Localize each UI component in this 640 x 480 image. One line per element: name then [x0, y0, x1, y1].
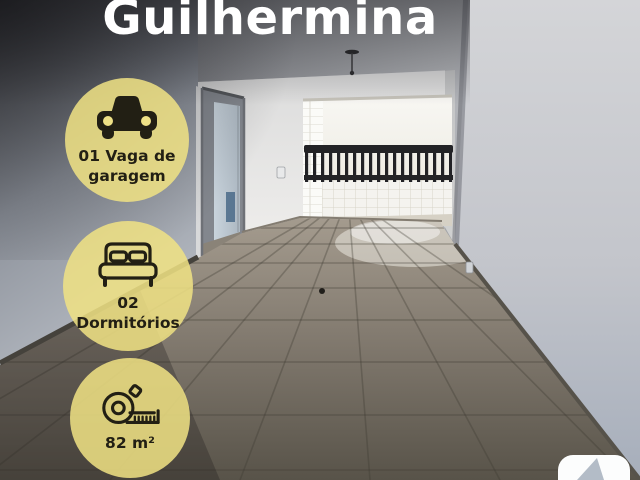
badge-parking-label: 01 Vaga de garagem	[78, 147, 175, 187]
badge-area: 82 m²	[70, 358, 190, 478]
car-icon	[94, 94, 160, 142]
power-outlet	[466, 262, 473, 273]
badge-area-line1: 82 m²	[105, 434, 155, 454]
floor-dot	[319, 288, 325, 294]
badge-parking-line1: 01 Vaga de	[78, 147, 175, 167]
balcony	[303, 96, 453, 226]
badge-bedrooms-label: 02 Dormitórios	[63, 294, 193, 334]
badge-bedrooms: 02 Dormitórios	[63, 221, 193, 351]
bed-icon	[95, 239, 161, 289]
badge-parking: 01 Vaga de garagem	[65, 78, 189, 202]
page-title: Guilhermina	[30, 0, 510, 46]
listing-image: Guilhermina 01 Vaga de garagem	[0, 0, 640, 480]
watermark-logo	[558, 455, 630, 480]
balcony-parapet-tiles	[322, 180, 452, 218]
badge-parking-line2: garagem	[78, 167, 175, 187]
badge-area-label: 82 m²	[105, 434, 155, 454]
logo-mark-icon	[558, 455, 630, 480]
balcony-railing	[304, 145, 453, 182]
tape-measure-icon	[98, 383, 162, 429]
badge-bedrooms-line1: 02 Dormitórios	[63, 294, 193, 334]
